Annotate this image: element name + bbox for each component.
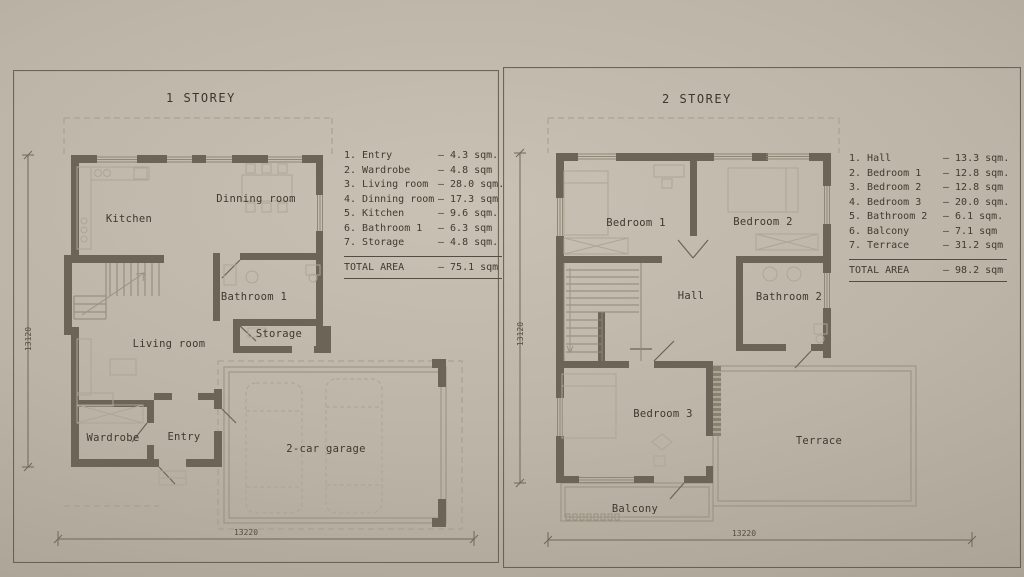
walls [556,153,831,483]
room-label-bathroom2: Bathroom 2 [756,291,822,303]
dimension-bottom [544,532,976,547]
dimension-bottom [54,531,478,546]
room-label-bathroom1: Bathroom 1 [221,291,287,303]
stairs [564,263,641,361]
floor-plan-1-drawing: Kitchen Dinning room Bathroom 1 Storage … [14,71,498,562]
dimension-width-label: 13220 [732,529,756,538]
room-label-dinning: Dinning room [216,193,295,205]
room-label-terrace: Terrace [796,435,842,447]
blueprint-photo: 1 STOREY 1. Entry– 4.3 sqm. 2. Wardrobe–… [0,0,1024,577]
stairs [74,263,159,319]
dimension-height-label: 13120 [516,322,525,346]
room-label-balcony: Balcony [612,503,658,515]
room-label-entry: Entry [167,431,200,443]
room-label-bedroom1: Bedroom 1 [606,217,666,229]
plan-panel-2-storey: 2 STOREY 1. Hall– 13.3 sqm. 2. Bedroom 1… [503,67,1021,568]
balcony-outline [561,483,713,521]
roof-outline-dashed [548,118,839,153]
room-label-living: Living room [133,338,206,350]
room-label-storage: Storage [256,328,302,340]
room-label-kitchen: Kitchen [106,213,152,225]
floor-plan-2-drawing: Bedroom 1 Bedroom 2 Hall Bathroom 2 Bedr… [504,68,1020,567]
room-label-garage: 2-car garage [286,443,365,455]
plan-panel-1-storey: 1 STOREY 1. Entry– 4.3 sqm. 2. Wardrobe–… [13,70,499,563]
room-label-bedroom2: Bedroom 2 [733,216,793,228]
dimension-left [514,149,526,487]
room-label-wardrobe: Wardrobe [87,432,140,444]
room-label-bedroom3: Bedroom 3 [633,408,693,420]
room-label-hall: Hall [678,290,705,302]
dimension-left [22,151,34,471]
dimension-width-label: 13220 [234,528,258,537]
dimension-height-label: 13120 [24,327,33,351]
garage-pillars [432,359,446,527]
